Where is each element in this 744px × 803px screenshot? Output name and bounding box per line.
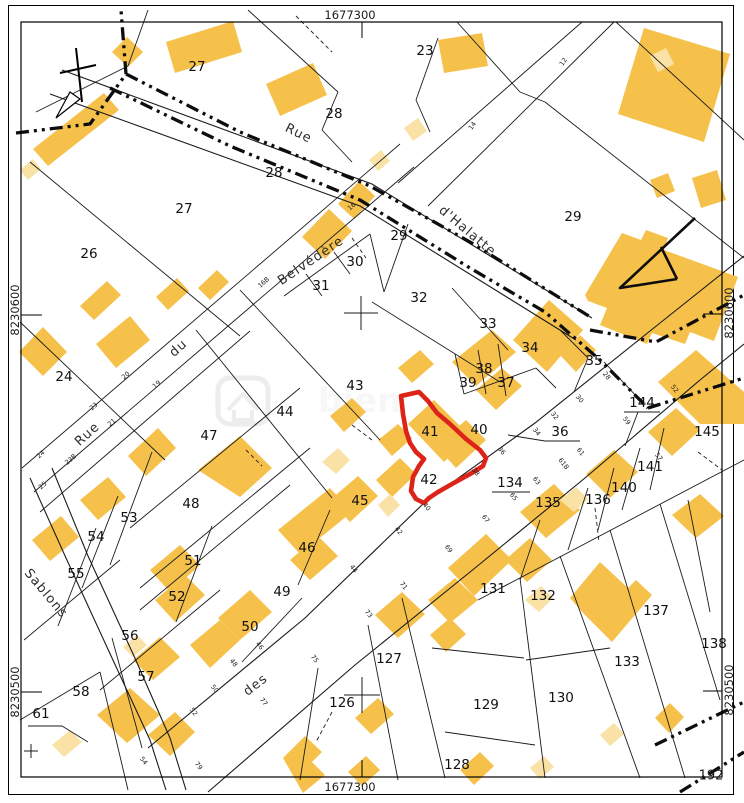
parcel-number: 27 <box>188 59 205 75</box>
parcel-number: 45 <box>351 493 368 509</box>
parcel-number: 132 <box>530 588 556 604</box>
parcel-boundary <box>445 732 535 745</box>
building-annex <box>378 494 400 517</box>
house-number: 34 <box>531 426 542 437</box>
house-number: 67 <box>480 513 491 524</box>
house-number: 46 <box>254 640 265 651</box>
house-number: 12 <box>558 56 569 67</box>
parcel-number: 24 <box>55 369 72 385</box>
grid-coord-left-lower: 8230500 <box>8 666 22 717</box>
house-number: 50 <box>209 683 220 694</box>
building <box>505 538 552 582</box>
house-number: 73 <box>363 608 374 619</box>
parcel-number: 49 <box>273 584 290 600</box>
parcel-boundary-dashed <box>352 425 372 440</box>
building <box>430 618 466 652</box>
north-arrow-flag-icon <box>56 92 80 118</box>
building <box>80 477 126 520</box>
building <box>80 281 121 320</box>
parcel-number: 54 <box>87 529 104 545</box>
grid-coord-corner: 192 <box>699 769 724 784</box>
parcel-boundary <box>368 625 398 780</box>
parcel-number: 52 <box>168 589 185 605</box>
watermark-logo <box>218 378 268 424</box>
building-annex <box>52 730 82 757</box>
parcel-number: 126 <box>329 695 355 711</box>
house-number: 71 <box>398 580 409 591</box>
building <box>618 28 730 142</box>
building <box>96 316 150 368</box>
cadastral-map-page: bienRueduBelvédèreRued'HalattedesSablons… <box>0 0 744 803</box>
parcel-boundary-dashed <box>698 452 722 470</box>
parcel-number: 130 <box>548 690 574 706</box>
parcel-number: 131 <box>480 581 506 597</box>
parcel-number: 32 <box>410 290 427 306</box>
parcel-number: 29 <box>564 209 581 225</box>
parcel-boundary <box>402 598 445 778</box>
parcel-number: 39 <box>459 375 476 391</box>
parcel-number: 30 <box>346 254 363 270</box>
house-number: 63 <box>531 475 542 486</box>
parcel-number: 51 <box>184 553 201 569</box>
street-name-label: Rue <box>72 419 103 449</box>
building <box>672 494 724 538</box>
parcel-number: 40 <box>470 422 487 438</box>
parcel-number: 41 <box>421 424 438 440</box>
parcel-number: 134 <box>497 475 523 491</box>
building <box>655 703 684 733</box>
house-number: 79 <box>193 760 204 771</box>
house-number: 54 <box>138 755 149 766</box>
parcel-number: 61 <box>32 706 49 722</box>
parcel-number: 53 <box>120 510 137 526</box>
building <box>156 278 189 310</box>
house-number: 16B <box>256 275 271 289</box>
house-number: 30 <box>574 393 585 404</box>
building <box>266 63 327 116</box>
parcel-number: 43 <box>346 378 363 394</box>
parcel-number: 133 <box>614 654 640 670</box>
house-number: 59 <box>621 415 632 426</box>
building <box>438 33 488 73</box>
grid-coord-right-upper: 8230600 <box>722 287 736 338</box>
house-number: 32 <box>549 410 560 421</box>
building <box>570 562 652 642</box>
parcel-number: 23 <box>416 43 433 59</box>
building-annex <box>404 118 427 141</box>
building <box>112 37 143 67</box>
street-name-label: Rue <box>283 121 315 147</box>
parcel-number: 31 <box>312 278 329 294</box>
parcel-number: 128 <box>444 757 470 773</box>
grid-coord-top: 1677300 <box>324 8 375 22</box>
house-number: 42 <box>393 525 404 536</box>
grid-coord-right-lower: 8230500 <box>722 664 736 715</box>
house-number: 75 <box>309 653 320 664</box>
parcel-number: 57 <box>137 669 154 685</box>
parcel-number: 55 <box>67 566 84 582</box>
parcel-boundary <box>128 10 148 66</box>
parcel-number: 42 <box>420 472 437 488</box>
house-number: 19 <box>151 379 162 390</box>
house-number: 61B <box>557 456 571 471</box>
building <box>198 270 229 300</box>
parcel-boundary <box>34 167 414 492</box>
parcel-number: 26 <box>80 246 97 262</box>
house-number: 65 <box>508 491 519 502</box>
house-number: 20 <box>120 370 131 381</box>
building <box>198 436 272 497</box>
building <box>283 736 325 793</box>
house-number: 48 <box>228 657 239 668</box>
parcel-number: 35 <box>585 353 602 369</box>
parcel-number: 56 <box>121 628 138 644</box>
parcel-boundary-dashed <box>316 712 332 742</box>
parcel-number: 27 <box>175 201 192 217</box>
building <box>32 516 79 561</box>
building-annex <box>322 448 350 474</box>
watermark-house-icon <box>228 394 258 420</box>
parcel-number: 135 <box>535 495 561 511</box>
parcel-number: 47 <box>200 428 217 444</box>
parcel-number: 28 <box>265 165 282 181</box>
parcel-boundary <box>526 648 610 660</box>
building-annex <box>600 723 624 746</box>
house-number: 52 <box>188 706 199 717</box>
parcel-number: 144 <box>629 395 655 411</box>
house-number: 77 <box>258 696 269 707</box>
house-number: 23B <box>63 452 78 466</box>
parcel-boundary <box>370 234 384 292</box>
parcel-number: 44 <box>276 404 293 420</box>
parcel-number: 33 <box>479 316 496 332</box>
house-number: 21 <box>106 417 117 428</box>
grid-coord-left-upper: 8230600 <box>8 284 22 335</box>
street-name-label: d'Halatte <box>436 203 499 260</box>
parcel-number: 58 <box>72 684 89 700</box>
parcel-number: 50 <box>241 619 258 635</box>
parcel-number: 38 <box>475 361 492 377</box>
house-number: 44 <box>348 563 359 574</box>
grid-coord-bottom: 1677300 <box>324 780 375 794</box>
parcel-boundary <box>30 162 240 336</box>
parcel-number: 36 <box>551 424 568 440</box>
street-name-label: Sablons <box>21 566 71 621</box>
road-edge <box>50 94 576 340</box>
parcel-boundary <box>432 648 524 658</box>
parcel-number: 140 <box>611 480 637 496</box>
house-number: 24 <box>35 449 46 460</box>
street-name-label: des <box>241 671 271 699</box>
parcel-number: 129 <box>473 697 499 713</box>
street-name-label: du <box>167 337 191 361</box>
parcel-number: 137 <box>643 603 669 619</box>
parcel-boundary <box>140 485 290 610</box>
parcel-boundary <box>110 452 152 565</box>
building-annex <box>530 756 554 779</box>
building <box>692 170 726 208</box>
parcel-boundary <box>322 130 352 162</box>
parcel-number: 34 <box>521 340 538 356</box>
parcel-number: 127 <box>376 651 402 667</box>
parcel-number: 138 <box>701 636 727 652</box>
building <box>398 350 434 383</box>
parcel-number: 136 <box>585 492 611 508</box>
parcel-number: 29 <box>390 228 407 244</box>
parcel-number: 28 <box>325 106 342 122</box>
parcel-number: 46 <box>298 540 315 556</box>
parcel-boundary <box>660 504 720 700</box>
parcel-number: 37 <box>497 375 514 391</box>
cadastral-map: bienRueduBelvédèreRued'HalattedesSablons… <box>0 0 744 803</box>
house-number: 36 <box>496 445 507 456</box>
house-number: 69 <box>443 543 454 554</box>
parcel-number: 145 <box>694 424 720 440</box>
parcel-number: 48 <box>182 496 199 512</box>
house-number: 61 <box>575 446 586 457</box>
